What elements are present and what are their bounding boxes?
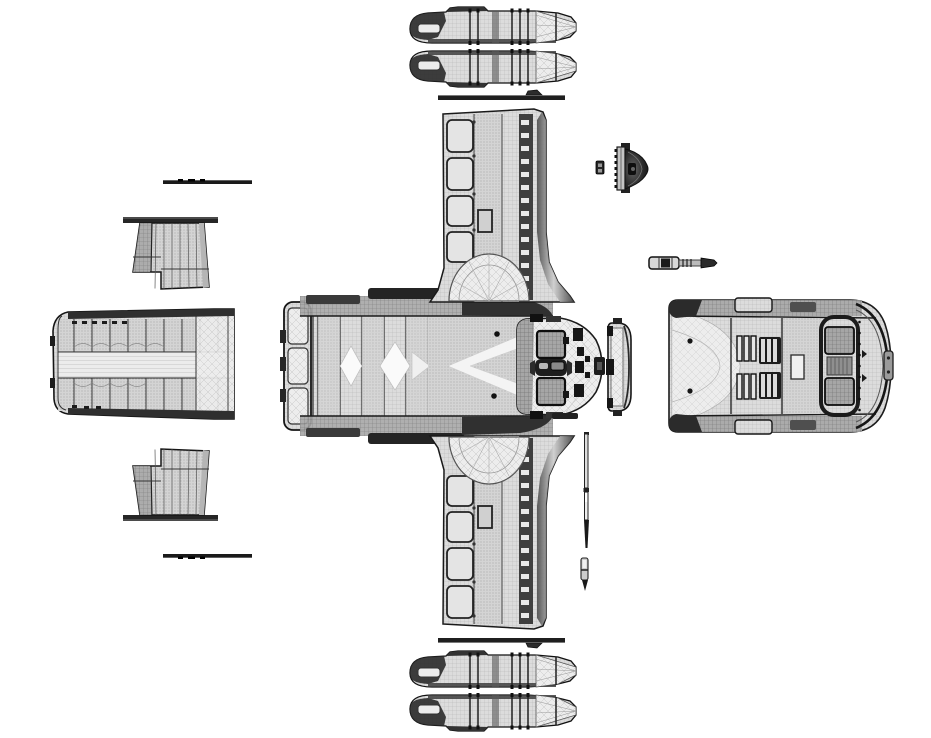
cargo-ramp-door bbox=[50, 309, 234, 419]
blueprint-sheet bbox=[0, 0, 931, 738]
junction-block bbox=[596, 161, 604, 174]
aft-hull-view bbox=[669, 298, 893, 434]
blueprint-canvas bbox=[0, 0, 931, 738]
main-hull-top-view bbox=[280, 288, 553, 444]
canopy-ring-section bbox=[606, 318, 631, 416]
bow-front-view bbox=[517, 314, 631, 419]
